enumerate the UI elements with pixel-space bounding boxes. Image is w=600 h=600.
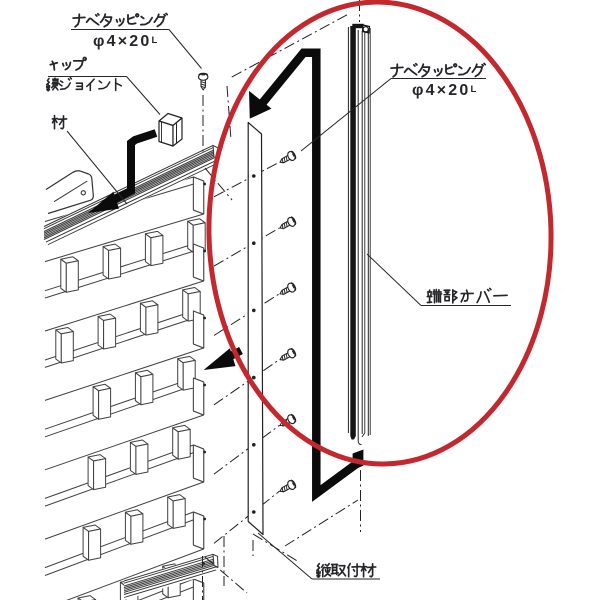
- svg-text:φ4×20L: φ4×20L: [412, 82, 479, 99]
- svg-text:φ4×20L: φ4×20L: [93, 33, 160, 50]
